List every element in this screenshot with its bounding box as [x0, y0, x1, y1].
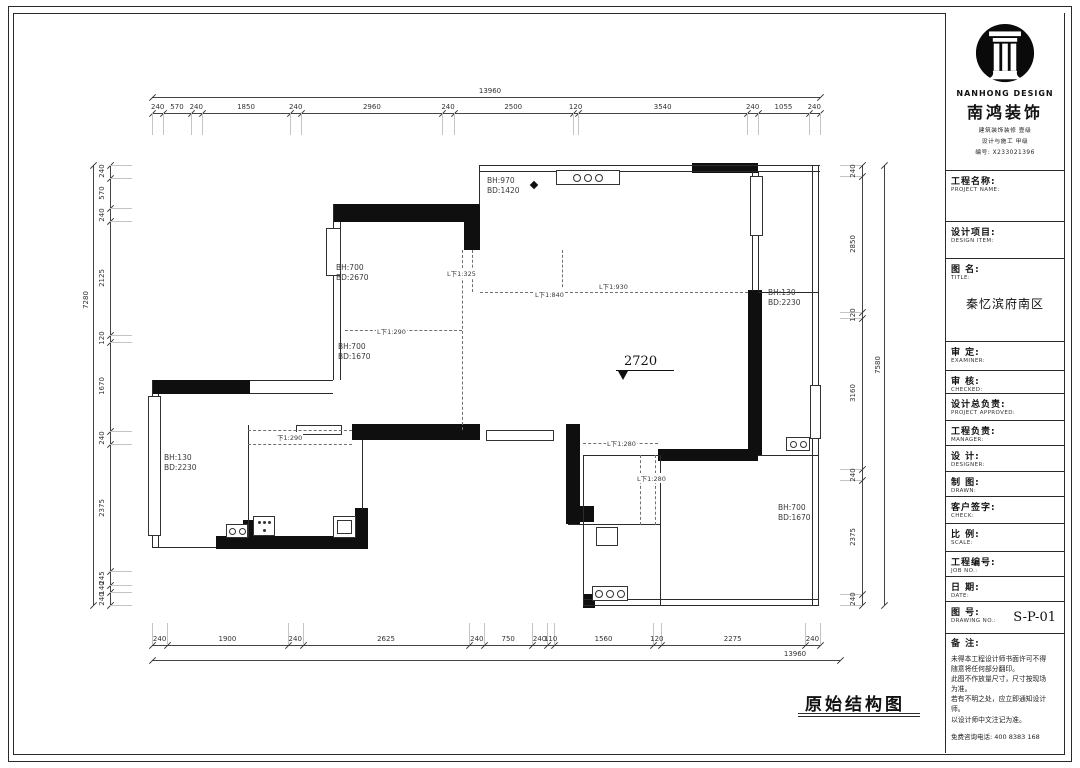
- dim-label: 240: [190, 103, 203, 111]
- dim-extension-line: [110, 444, 132, 445]
- field-label-cn: 设计项目:: [951, 225, 1059, 238]
- dim-label: 240: [98, 165, 106, 178]
- dim-line: [152, 113, 820, 114]
- field-label-en: TITLE:: [951, 275, 1059, 281]
- beam-height: BH:130: [164, 453, 197, 463]
- beam-height: BH:130: [768, 288, 801, 298]
- beam-label: BH:130BD:2230: [768, 288, 801, 308]
- beam-tag: L下1:290: [376, 326, 407, 336]
- wall-segment: [352, 424, 480, 440]
- radiator-three-circle-icon: [592, 586, 628, 601]
- thin-wall-line: [583, 455, 659, 456]
- dim-label: 570: [170, 103, 183, 111]
- dim-extension-line: [809, 113, 810, 135]
- beam-tag: L下1:840: [534, 289, 565, 299]
- sink-basin-icon: [337, 520, 352, 534]
- beam-label: BH:700BD:1670: [338, 342, 371, 362]
- dim-label: 120: [98, 332, 106, 345]
- field-label-cn: 客户签字:: [951, 500, 1059, 513]
- burner-knob-icon: [229, 528, 236, 535]
- dim-extension-line: [454, 113, 455, 135]
- dim-line-total: [152, 660, 840, 661]
- dim-label: 240: [808, 103, 821, 111]
- hob-dot-icon: [263, 521, 266, 524]
- field-label-en: MANAGER:: [951, 437, 1059, 443]
- titleblock-logo-section: NANHONG DESIGN 南鸿装饰 建筑装饰装修 壹级 设计与施工 甲级 编…: [946, 13, 1064, 171]
- dim-label: 3540: [654, 103, 672, 111]
- field-label-cn: 工程名称:: [951, 174, 1059, 187]
- radiator-knob-icon: [606, 590, 614, 598]
- beam-tag: 下1:290: [276, 432, 303, 442]
- dim-extension-line: [747, 113, 748, 135]
- titleblock-rows: 工程名称:PROJECT NAME:设计项目:DESIGN ITEM:图 名:T…: [946, 171, 1064, 634]
- appliance-knob-icon: [800, 441, 807, 448]
- hotline-text: 免费咨询电话: 400 8383 168: [951, 733, 1059, 743]
- dim-label: 2960: [363, 103, 381, 111]
- dim-label: 240: [153, 635, 166, 643]
- dim-label: 240: [98, 592, 106, 605]
- wall-segment: [464, 204, 480, 250]
- dim-extension-line: [484, 623, 485, 645]
- titleblock-field-drawn: 制 图:DRAWN:: [946, 472, 1064, 497]
- burner-knob-icon: [595, 174, 603, 182]
- titleblock-field-date: 日 期:DATE:: [946, 577, 1064, 602]
- floor-plan: BH:970BD:1420BH:700BD:2670BH:700BD:1670B…: [0, 0, 945, 768]
- thin-wall-line: [362, 440, 363, 510]
- field-label-en: CHECK:: [951, 513, 1059, 519]
- dim-extension-line: [163, 113, 164, 135]
- field-label-cn: 审 定:: [951, 345, 1059, 358]
- beam-height: BH:970: [487, 176, 520, 186]
- window-hatch: [148, 396, 161, 536]
- dim-label: 2125: [98, 269, 106, 287]
- radiator-knob-icon: [617, 590, 625, 598]
- note-line: 若有不明之处，应立即通知设计: [951, 694, 1059, 704]
- dim-total-top: 13960: [479, 87, 501, 95]
- dim-label: 240: [746, 103, 759, 111]
- wall-segment: [748, 290, 762, 456]
- field-label-cn: 设计总负责:: [951, 397, 1059, 410]
- window-hatch: [486, 430, 554, 441]
- dim-extension-line: [110, 585, 132, 586]
- radiator-knob-icon: [595, 590, 603, 598]
- dim-extension-line: [110, 208, 132, 209]
- cert-line-1: 建筑装饰装修 壹级: [946, 125, 1064, 134]
- beam-tag: L下1:280: [606, 438, 637, 448]
- burner-knob-icon: [573, 174, 581, 182]
- dim-total-bottom: 13960: [784, 650, 806, 658]
- dim-label: 1670: [98, 378, 106, 396]
- dim-extension-line: [110, 178, 132, 179]
- thin-wall-line: [480, 165, 820, 166]
- titleblock-field-scale: 比 例:SCALE:: [946, 524, 1064, 552]
- window-hatch: [750, 176, 763, 236]
- dim-extension-line: [110, 342, 132, 343]
- notes-title: 备 注:: [951, 638, 1059, 652]
- logo-text-en: NANHONG DESIGN: [946, 89, 1064, 98]
- beam-label: BH:700BD:1670: [778, 503, 811, 523]
- titleblock-field-check: 客户签字:CHECK:: [946, 497, 1064, 524]
- dim-extension-line: [110, 605, 132, 606]
- dim-extension-line: [820, 623, 821, 645]
- stove-burners-icon: [556, 170, 620, 185]
- dim-label: 2625: [377, 635, 395, 643]
- hob-dot-icon: [258, 521, 261, 524]
- thin-wall-line: [583, 605, 819, 606]
- dim-line: [110, 165, 111, 605]
- dim-extension-line: [758, 113, 759, 135]
- level-mark: 2720: [624, 354, 657, 369]
- field-label-en: DRAWN:: [951, 488, 1059, 494]
- cert-line-2: 设计与施工 甲级: [946, 136, 1064, 145]
- beam-height: BH:700: [336, 263, 369, 273]
- dim-label: 240: [98, 431, 106, 444]
- dim-extension-line: [290, 113, 291, 135]
- dim-label: 240: [849, 468, 857, 481]
- beam-height: BH:700: [338, 342, 371, 352]
- wall-segment: [658, 449, 758, 461]
- dim-tick: [881, 602, 888, 609]
- dim-label: 1560: [595, 635, 613, 643]
- dim-label: 750: [501, 635, 514, 643]
- dim-extension-line: [167, 623, 168, 645]
- dim-label: 240: [289, 635, 302, 643]
- cert-line-3: 编号: X233021396: [946, 147, 1064, 156]
- titleblock-field-drawing-no: 图 号:DRAWING NO.:S-P-01: [946, 602, 1064, 634]
- dim-tick: [837, 657, 844, 664]
- thin-wall-line: [250, 393, 333, 394]
- field-label-en: DATE:: [951, 593, 1059, 599]
- note-line: 以设计师中文注记为准。: [951, 715, 1059, 725]
- field-label-en: DESIGNER:: [951, 462, 1059, 468]
- dim-tick: [817, 94, 824, 101]
- dim-extension-line: [301, 113, 302, 135]
- wall-segment: [333, 204, 480, 222]
- dim-label: 240: [441, 103, 454, 111]
- beam-label: BH:130BD:2230: [164, 453, 197, 473]
- dim-extension-line: [110, 221, 132, 222]
- caption-underline-1: [798, 713, 920, 714]
- thin-wall-line: [248, 425, 249, 537]
- dim-extension-line: [303, 623, 304, 645]
- dim-label: 240: [151, 103, 164, 111]
- beam-depth: BD:2670: [336, 273, 369, 283]
- beam-tag: L下1:325: [446, 268, 477, 278]
- dim-extension-line: [110, 571, 132, 572]
- dim-label: 2500: [504, 103, 522, 111]
- dim-line-total: [93, 165, 94, 605]
- dim-label: 240: [849, 164, 857, 177]
- column-diamond-icon: [530, 181, 538, 189]
- thin-wall-line: [568, 524, 660, 525]
- beam-depth: BD:2230: [164, 463, 197, 473]
- field-label-cn: 制 图:: [951, 475, 1059, 488]
- company-logo-column-icon: [975, 23, 1035, 83]
- note-line: 师。: [951, 704, 1059, 714]
- dim-label: 1850: [237, 103, 255, 111]
- beam-label: BH:700BD:2670: [336, 263, 369, 283]
- dim-line-total: [152, 97, 820, 98]
- thin-wall-line: [479, 165, 480, 205]
- dim-label: 3160: [849, 385, 857, 403]
- note-line: 随意将任何部分翻印。: [951, 664, 1059, 674]
- dashed-beam-line: [248, 444, 352, 445]
- titleblock-field-examiner: 审 定:EXAMINER:: [946, 342, 1064, 371]
- dim-extension-line: [110, 431, 132, 432]
- cooktop-two-burner-icon: [226, 524, 248, 538]
- beam-depth: BD:1670: [338, 352, 371, 362]
- field-label-en: PROJECT APPROVED:: [951, 410, 1059, 416]
- beam-depth: BD:1420: [487, 186, 520, 196]
- wall-segment: [566, 506, 594, 522]
- field-label-en: JOB NO.:: [951, 568, 1059, 574]
- dim-total-right: 7580: [874, 356, 882, 374]
- bath-fixture-icon: [596, 527, 618, 546]
- dashed-beam-line: [640, 455, 641, 525]
- project-title-value: 秦忆滨府南区: [951, 295, 1059, 312]
- dim-label: 120: [569, 103, 582, 111]
- beam-depth: BD:2230: [768, 298, 801, 308]
- field-label-cn: 设 计:: [951, 449, 1059, 462]
- caption-underline-2: [798, 716, 920, 717]
- note-line: 此图不作放量尺寸，尺寸按现场: [951, 674, 1059, 684]
- dashed-beam-line: [562, 250, 563, 292]
- dim-extension-line: [110, 165, 132, 166]
- field-label-cn: 比 例:: [951, 527, 1059, 540]
- drawing-caption: 原始结构图: [805, 690, 905, 715]
- dim-extension-line: [820, 113, 821, 135]
- dim-label: 240: [98, 208, 106, 221]
- dim-extension-line: [191, 113, 192, 135]
- field-label-en: SCALE:: [951, 540, 1059, 546]
- beam-label: BH:970BD:1420: [487, 176, 520, 196]
- titleblock-field-project-name: 工程名称:PROJECT NAME:: [946, 171, 1064, 222]
- dim-label: 570: [98, 186, 106, 199]
- titleblock-field-checked: 审 核:CHECKED:: [946, 371, 1064, 394]
- appliance-knob-icon: [790, 441, 797, 448]
- dim-label: 120: [849, 309, 857, 322]
- drawing-sheet: { "sheet": { "caption": "原始结构图" }, "plan…: [0, 0, 1080, 768]
- titleblock-field-designer: 设 计:DESIGNER:: [946, 446, 1064, 472]
- dim-label: 2375: [849, 528, 857, 546]
- thin-wall-line: [250, 380, 333, 381]
- thin-wall-line: [583, 455, 584, 605]
- hob-dot-icon: [268, 521, 271, 524]
- wall-segment: [152, 380, 250, 394]
- dim-total-left: 7280: [82, 291, 90, 309]
- dim-extension-line: [110, 335, 132, 336]
- note-line: 未得本工程设计师书面许可不得: [951, 654, 1059, 664]
- window-hatch: [810, 385, 821, 439]
- burner-knob-icon: [584, 174, 592, 182]
- dim-label: 2375: [98, 499, 106, 517]
- dim-extension-line: [110, 592, 132, 593]
- titleblock-field-design-item: 设计项目:DESIGN ITEM:: [946, 222, 1064, 259]
- dim-label: 240: [470, 635, 483, 643]
- drawing-number-value: S-P-01: [1013, 610, 1056, 625]
- titleblock-notes: 备 注: 未得本工程设计师书面许可不得随意将任何部分翻印。此图不作放量尺寸，尺寸…: [946, 634, 1064, 747]
- appliance-two-circle-icon: [786, 437, 810, 451]
- hob-four-dot-icon: [253, 516, 275, 536]
- beam-depth: BD:1670: [778, 513, 811, 523]
- field-label-cn: 图 名:: [951, 262, 1059, 275]
- field-label-cn: 工程负责:: [951, 424, 1059, 437]
- titleblock-field-job-no: 工程编号:JOB NO.:: [946, 552, 1064, 577]
- level-mark-value: 2720: [624, 354, 657, 369]
- titleblock-field-title: 图 名:TITLE:秦忆滨府南区: [946, 259, 1064, 342]
- sink-icon: [333, 516, 356, 538]
- dim-line: [152, 645, 820, 646]
- field-label-en: EXAMINER:: [951, 358, 1059, 364]
- beam-tag: L下1:930: [598, 281, 629, 291]
- field-label-en: PROJECT NAME:: [951, 187, 1059, 193]
- titleblock-field-project-approved: 设计总负责:PROJECT APPROVED:: [946, 394, 1064, 421]
- field-label-cn: 日 期:: [951, 580, 1059, 593]
- field-label-cn: 审 核:: [951, 374, 1059, 387]
- dashed-beam-line: [480, 292, 748, 293]
- dim-line-total: [884, 165, 885, 605]
- beam-height: BH:700: [778, 503, 811, 513]
- dim-label: 1900: [218, 635, 236, 643]
- dim-label: 2850: [849, 235, 857, 253]
- dim-label: 2275: [724, 635, 742, 643]
- field-label-en: DESIGN ITEM:: [951, 238, 1059, 244]
- level-mark-triangle-icon: [618, 371, 628, 380]
- wall-segment: [355, 508, 368, 549]
- titleblock-field-manager: 工程负责:MANAGER:: [946, 421, 1064, 446]
- dim-label: 240: [806, 635, 819, 643]
- dim-label: 120: [650, 635, 663, 643]
- dim-extension-line: [152, 113, 153, 135]
- dim-extension-line: [202, 113, 203, 135]
- field-label-cn: 工程编号:: [951, 555, 1059, 568]
- thin-wall-line: [152, 547, 216, 548]
- dim-extension-line: [573, 113, 574, 135]
- beam-tag: L下1:280: [636, 473, 667, 483]
- logo-text-cn: 南鸿装饰: [946, 99, 1064, 123]
- dim-label: 240: [849, 593, 857, 606]
- titleblock: NANHONG DESIGN 南鸿装饰 建筑装饰装修 壹级 设计与施工 甲级 编…: [945, 13, 1064, 753]
- thin-wall-line: [758, 455, 818, 456]
- dashed-beam-line: [248, 430, 352, 431]
- dim-extension-line: [578, 113, 579, 135]
- dim-label: 240: [289, 103, 302, 111]
- dim-line: [862, 165, 863, 605]
- burner-knob-icon: [239, 528, 246, 535]
- thin-wall-line: [480, 171, 820, 172]
- hob-dot-icon: [263, 529, 266, 532]
- dim-extension-line: [442, 113, 443, 135]
- dim-label: 1055: [775, 103, 793, 111]
- field-label-en: CHECKED:: [951, 387, 1059, 393]
- note-line: 为准。: [951, 684, 1059, 694]
- dashed-beam-line: [655, 455, 656, 525]
- dim-label: 110: [544, 635, 557, 643]
- notes-lines: 未得本工程设计师书面许可不得随意将任何部分翻印。此图不作放量尺寸，尺寸按现场为准…: [951, 654, 1059, 725]
- dim-tick: [90, 602, 97, 609]
